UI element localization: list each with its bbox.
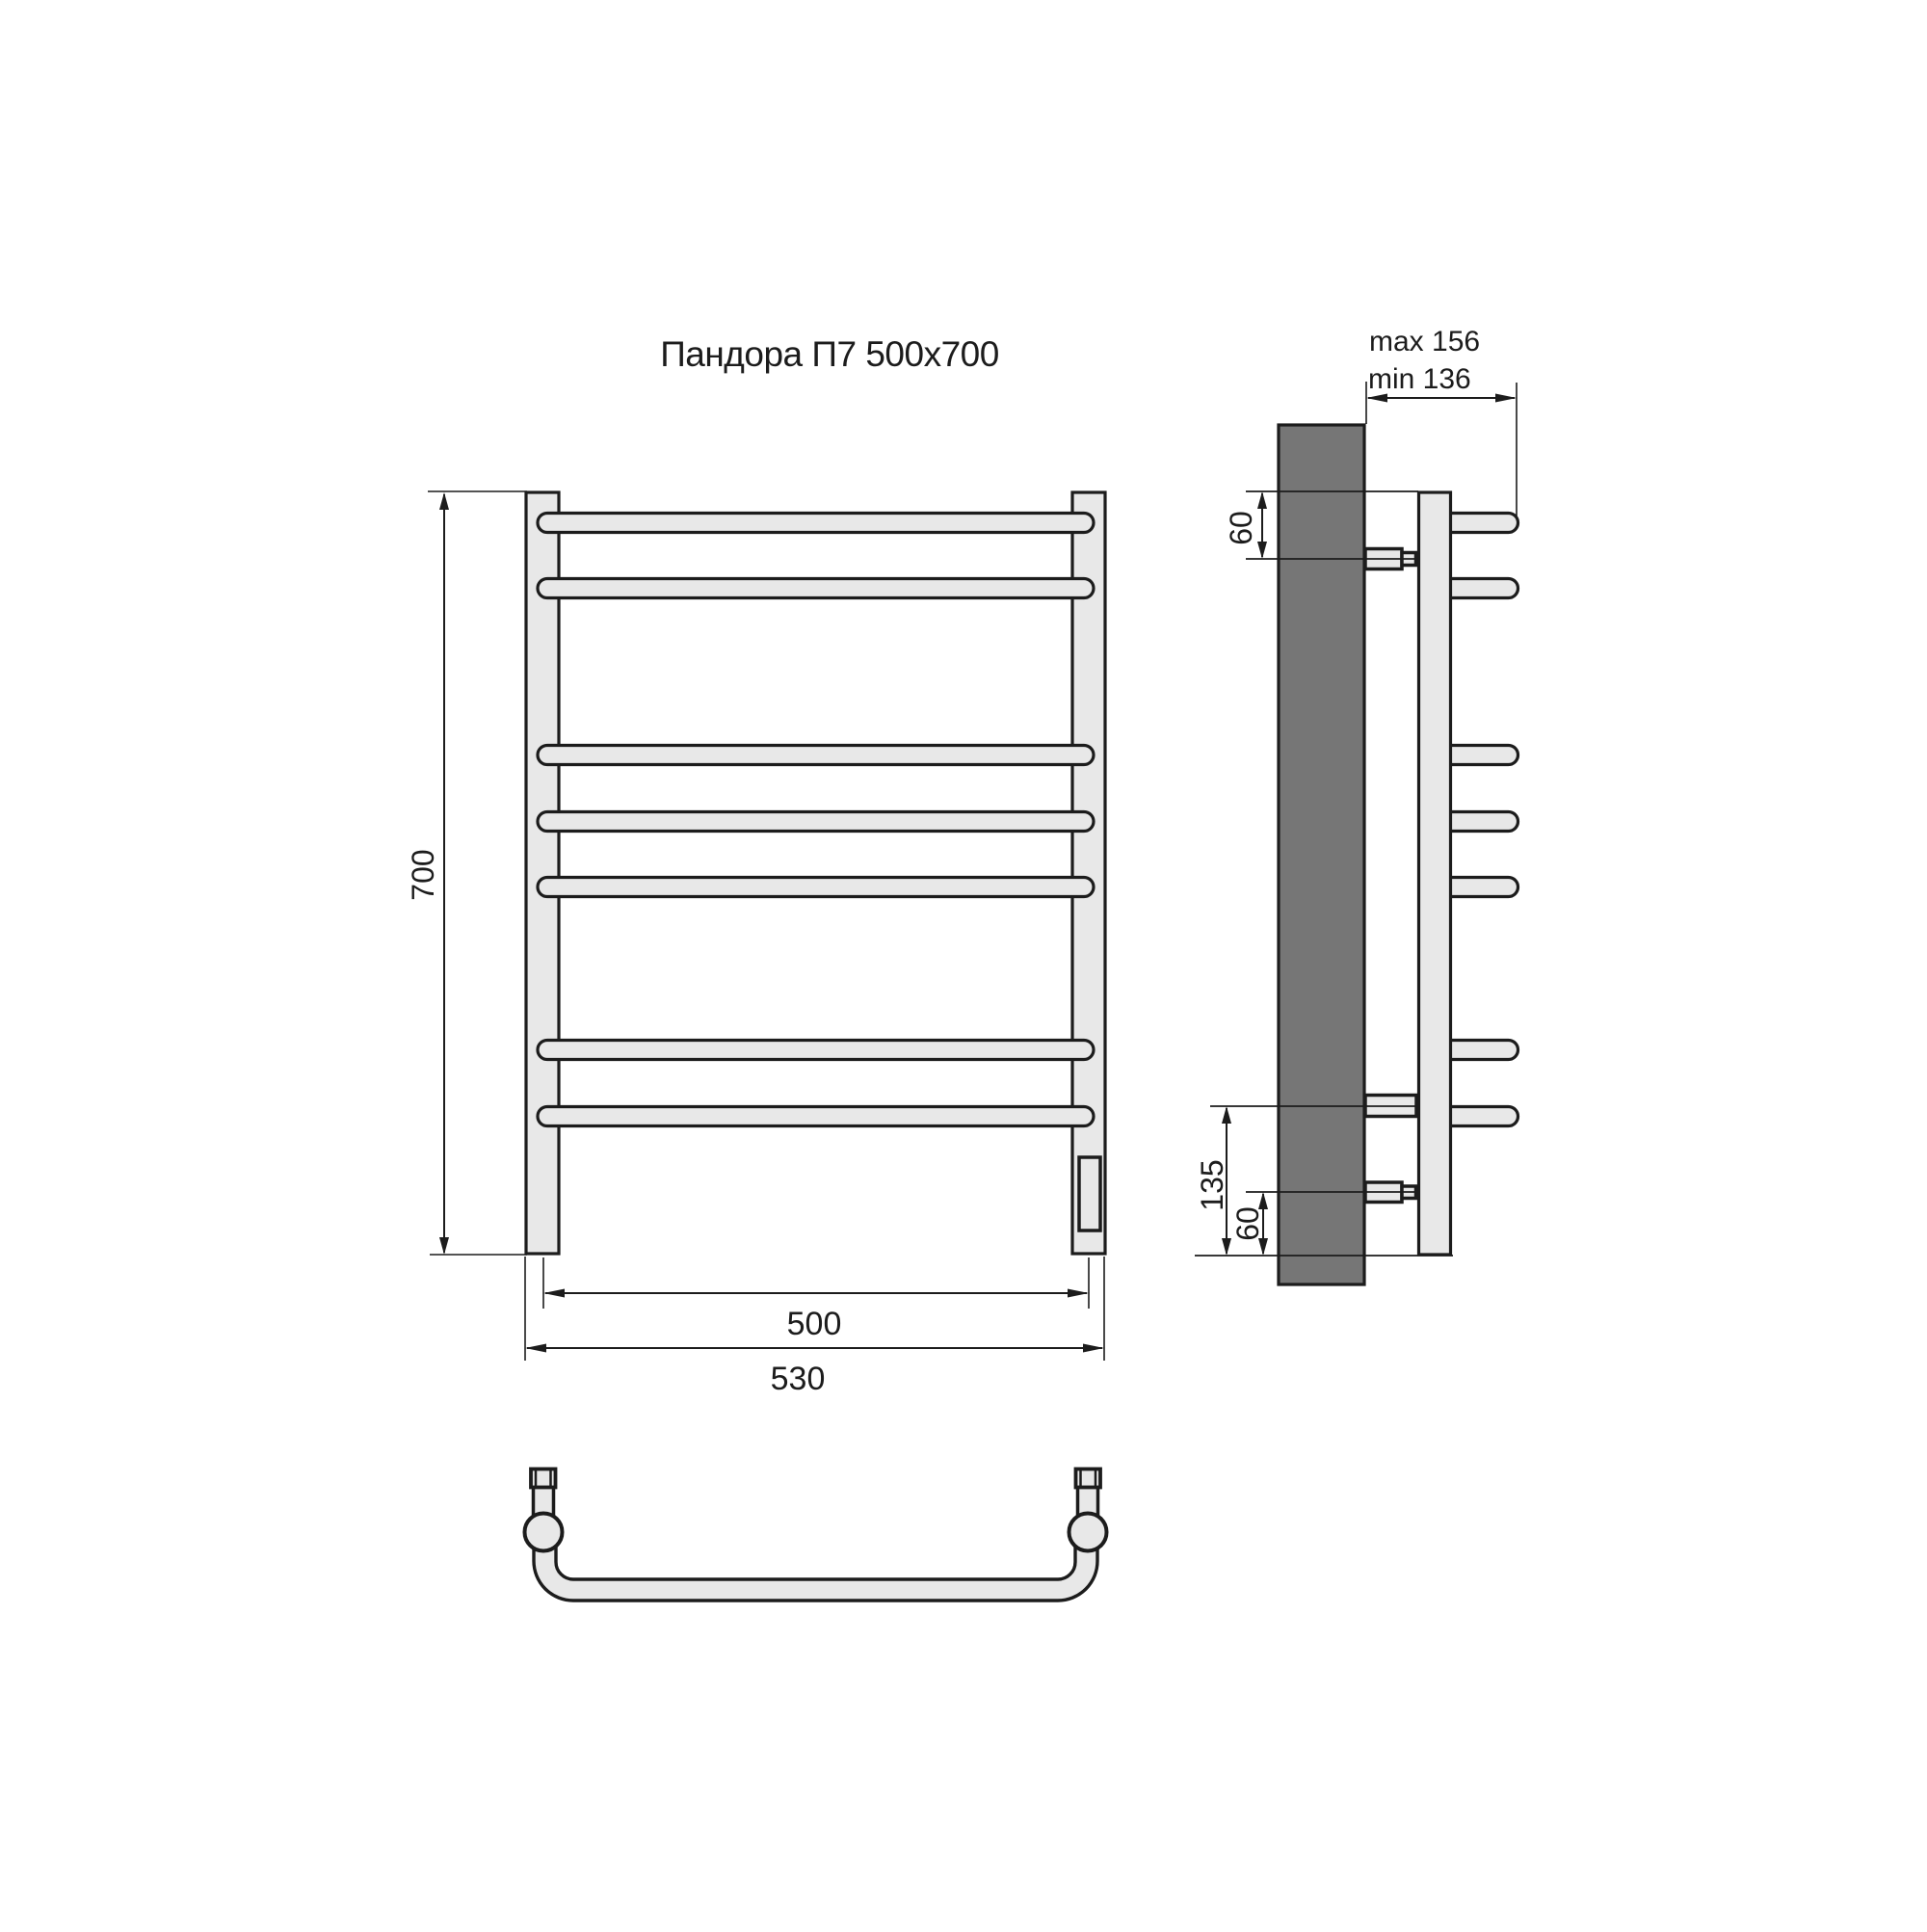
svg-text:500: 500 [787,1306,842,1342]
svg-text:135: 135 [1195,1159,1229,1210]
svg-text:60: 60 [1230,1206,1265,1241]
svg-text:60: 60 [1224,511,1258,545]
svg-text:530: 530 [771,1361,826,1397]
svg-text:700: 700 [406,849,440,900]
svg-text:max 156: max 156 [1369,326,1480,357]
svg-text:Пандора П7 500x700: Пандора П7 500x700 [660,334,999,374]
svg-text:min 136: min 136 [1368,363,1471,395]
